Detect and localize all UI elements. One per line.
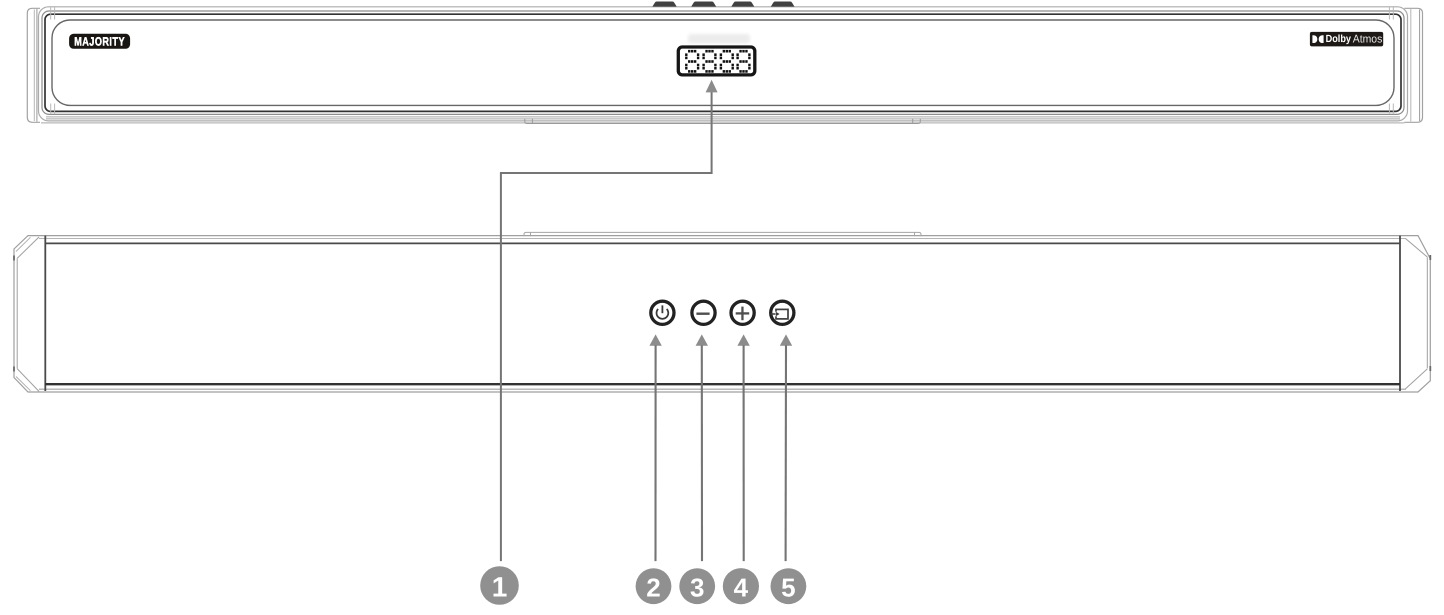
svg-text:5: 5 xyxy=(781,573,795,603)
svg-text:1: 1 xyxy=(492,572,508,603)
svg-text:Dolby: Dolby xyxy=(1326,34,1352,45)
svg-text:2: 2 xyxy=(646,573,660,603)
svg-text:Atmos: Atmos xyxy=(1353,33,1383,45)
svg-text:3: 3 xyxy=(690,573,704,603)
svg-text:MAJORITY: MAJORITY xyxy=(74,35,125,49)
svg-text:4: 4 xyxy=(734,573,749,603)
